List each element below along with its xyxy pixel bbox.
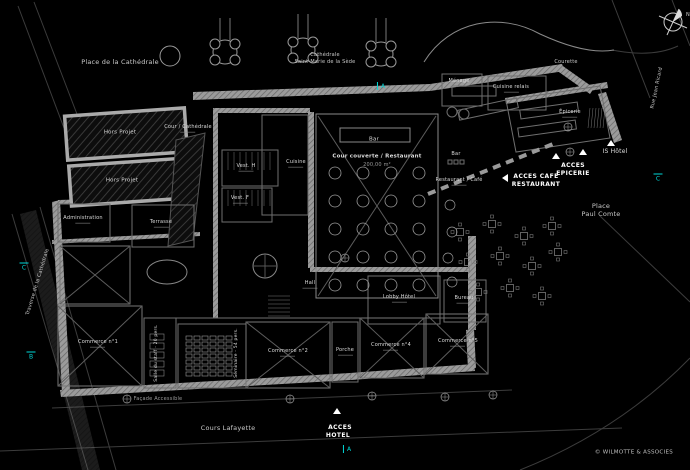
room-epicerie: Épicerie <box>559 109 581 118</box>
room-seminaire: Séminaire - 54 pers. <box>234 328 240 378</box>
room-hors-projet-2: Hors Projet <box>106 177 138 184</box>
access-hotel-line1: ACCES <box>328 424 352 432</box>
street-cours-lafayette: Cours Lafayette <box>201 424 256 432</box>
seminar-chairs <box>186 336 232 376</box>
street-place-cathedrale: Place de la Cathédrale <box>81 58 159 66</box>
access-epicerie-line2: EPICERIE <box>556 170 589 178</box>
access-cafe-line2: RESTAURANT <box>512 181 560 189</box>
room-commerce-1: Commerce n°1 <box>78 339 118 348</box>
room-cuisine: Cuisine <box>286 159 306 168</box>
access-epicerie-line1: ACCES <box>561 162 585 170</box>
cathedral-label-line2: Saint-Marie de la Sède <box>295 59 356 66</box>
room-cuisine-relais: Cuisine relais <box>493 84 529 93</box>
room-cour-couverte-area: 200,00 m² <box>363 162 391 169</box>
credit-label: © WILMOTTE & ASSOCIES <box>595 449 673 456</box>
arrow-is-hotel-icon <box>607 140 615 146</box>
section-marker-c-right: C <box>654 174 663 183</box>
room-hall: Hall <box>303 280 318 289</box>
access-hotel-line2: HOTEL <box>326 432 350 440</box>
room-vestiaire-h: Vest. H <box>236 163 255 172</box>
cathedral-label-line1: Cathédrale <box>310 52 340 59</box>
room-administration: Administration <box>63 215 102 224</box>
room-terrasse: Terrasse <box>150 219 172 228</box>
cafe-tables <box>443 200 457 287</box>
room-commerce-4: Commerce n°4 <box>371 342 411 351</box>
courtyard-tables <box>329 167 425 291</box>
compass-north-label: N <box>686 12 690 19</box>
room-cour-couverte: Cour couverte / Restaurant <box>332 153 421 160</box>
arrow-epicerie-right-icon <box>579 149 587 155</box>
room-bar-small: Bar <box>451 151 460 158</box>
room-vestiaire-f: Vest. F <box>231 195 249 204</box>
room-bureau: Bureau <box>454 295 473 304</box>
room-restaurant-cafe: Restaurant / Café <box>435 177 482 186</box>
room-commerce-2: Commerce n°2 <box>268 348 308 357</box>
room-bar: Bar <box>369 136 379 143</box>
cathedral-piers <box>160 14 614 67</box>
arrow-hotel-icon <box>333 408 341 414</box>
is-hotel-label: IS Hôtel <box>603 148 628 156</box>
room-cour-cathedrale: Cour / Cathédrale <box>164 124 212 133</box>
section-marker-a-bottom: A <box>343 445 351 453</box>
plan-linework <box>0 0 690 470</box>
access-cafe-line1: ACCES CAFE <box>513 173 558 181</box>
floor-plan: Place de la Cathédrale Cathédrale Saint-… <box>0 0 690 470</box>
room-porche: Porche <box>336 347 354 356</box>
room-menage: Ménage <box>448 78 469 87</box>
arrow-epicerie-left-icon <box>552 153 560 159</box>
compass-icon <box>659 9 687 35</box>
room-lobby-hotel: Lobby Hôtel <box>383 294 415 303</box>
section-marker-b-left: B <box>27 352 36 361</box>
section-marker-a-top: A <box>377 82 385 90</box>
room-commerce-5: Commerce n°5 <box>438 338 478 347</box>
facade-accessible-label: Façade Accessible <box>134 396 183 403</box>
stairs <box>228 108 605 316</box>
room-hors-projet-1: Hors Projet <box>104 129 136 136</box>
street-courette: Courette <box>554 59 577 66</box>
section-marker-c-left: C <box>20 263 29 272</box>
room-salle-staff: Salle du staff - 20 pers. <box>154 324 160 381</box>
place-paul-comte-line2: Paul Comte <box>582 210 621 218</box>
arrow-cafe-restaurant-icon <box>502 174 508 182</box>
street-lines <box>0 0 690 470</box>
